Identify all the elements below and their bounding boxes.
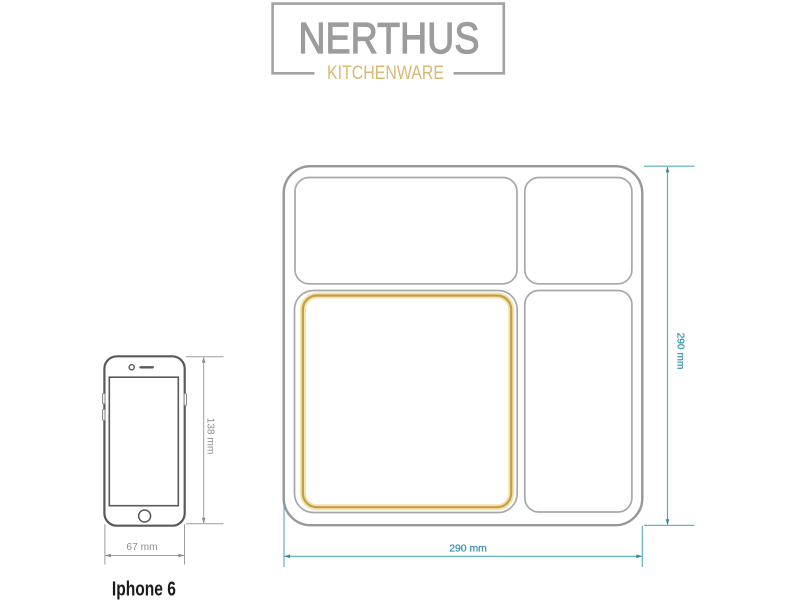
svg-text:138 mm: 138 mm bbox=[204, 418, 215, 455]
svg-text:290 mm: 290 mm bbox=[674, 333, 685, 370]
svg-text:KITCHENWARE: KITCHENWARE bbox=[327, 63, 444, 84]
svg-text:Iphone 6: Iphone 6 bbox=[112, 579, 176, 600]
svg-text:290 mm: 290 mm bbox=[449, 544, 487, 555]
svg-text:67 mm: 67 mm bbox=[126, 542, 157, 553]
svg-text:NERTHUS: NERTHUS bbox=[298, 14, 479, 63]
